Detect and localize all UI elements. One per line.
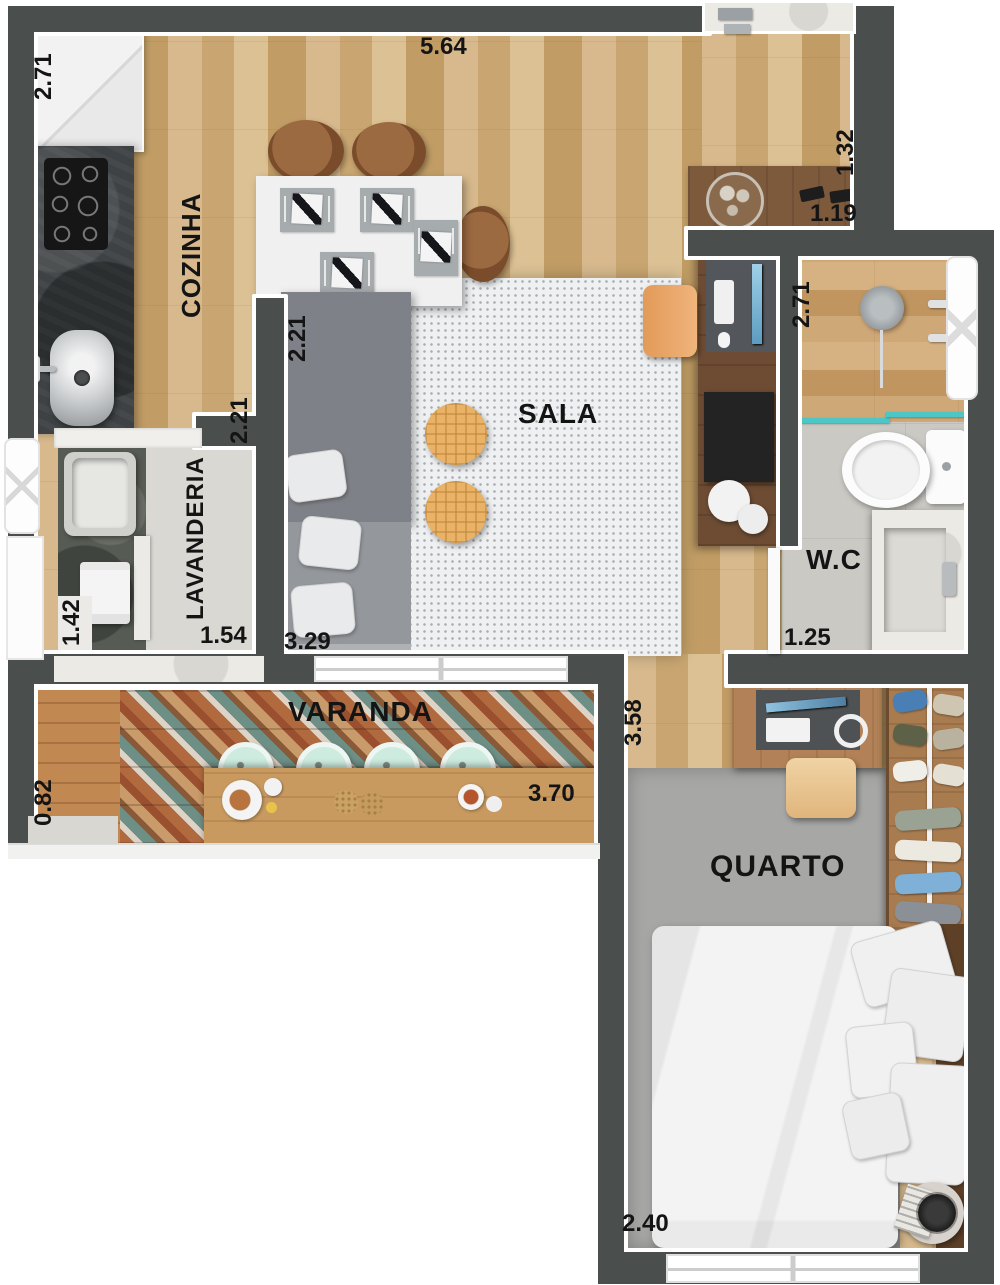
saucer [486, 796, 502, 812]
dim-kitchen-width: 2.21 [226, 378, 254, 444]
desk-keyboard [714, 280, 734, 324]
desk-mouse [718, 332, 730, 348]
niche-item [724, 24, 750, 34]
cooktop [44, 158, 108, 250]
dim-hall-width: 1.19 [810, 200, 857, 228]
dining-chair [352, 122, 426, 182]
placemat [320, 252, 374, 296]
vanity-basin [884, 528, 946, 632]
placemat [414, 220, 458, 276]
desk-chair [643, 285, 697, 357]
toilet-button [942, 462, 951, 471]
wall [728, 654, 994, 684]
wall [8, 6, 34, 858]
room-label-wc: W.C [806, 544, 862, 576]
sofa-pillow [284, 448, 348, 504]
laundry-sink-bowl [72, 458, 128, 528]
wall [256, 298, 284, 658]
dining-chair [456, 206, 510, 282]
cookie [334, 790, 358, 814]
small-cup [264, 778, 282, 796]
dim-bedroom-depth: 3.58 [620, 680, 648, 746]
lemon [266, 802, 277, 813]
desk-monitor [752, 264, 762, 344]
laundry-sill [54, 656, 264, 682]
food-plate [222, 780, 262, 820]
room-label-sala: SALA [518, 398, 598, 430]
bedroom-window [666, 1254, 920, 1283]
balcony-sliding-door [314, 656, 568, 682]
pouf [425, 481, 487, 543]
coffee-cup [458, 784, 484, 810]
shower-glass [886, 412, 968, 417]
placemat [360, 188, 414, 232]
balcony-edge-sill [8, 843, 600, 859]
washer-door [134, 536, 150, 640]
dim-hall-depth: 1.32 [832, 110, 860, 176]
wall [968, 654, 994, 1284]
placemat [280, 188, 334, 232]
bed-pillow [840, 1090, 911, 1161]
dim-wc-depth: 2.71 [788, 262, 816, 328]
shower-arm [880, 330, 883, 388]
pouf [425, 403, 487, 465]
clothing-item [895, 871, 962, 894]
dim-top-width: 5.64 [420, 33, 467, 61]
kitchen-laundry-threshold [54, 428, 202, 448]
dim-balcony-depth: 0.82 [30, 760, 58, 826]
dim-kitchen-depth: 2.71 [30, 34, 58, 100]
dim-laundry-depth: 1.42 [58, 580, 86, 646]
room-label-varanda: VARANDA [288, 696, 433, 728]
decor-disc [738, 504, 768, 534]
shower-glass [790, 418, 890, 423]
clothing-item [894, 807, 961, 832]
clothing-item [932, 693, 967, 718]
clothing-item [892, 688, 929, 714]
wall [598, 654, 624, 1284]
room-label-quarto: QUARTO [710, 850, 845, 884]
room-label-lavanderia: LAVANDERIA [182, 460, 210, 620]
bedroom-chair [786, 758, 856, 818]
room-label-cozinha: COZINHA [176, 190, 207, 318]
dim-wc-width: 1.25 [784, 624, 831, 652]
dim-sala-width: 3.29 [284, 628, 331, 656]
wall [854, 6, 894, 254]
cookie [360, 792, 384, 816]
wall [688, 230, 994, 256]
vanity-faucet [942, 562, 956, 596]
clothing-item [892, 759, 928, 782]
sofa-pillow [298, 515, 363, 571]
service-shaft [6, 536, 44, 660]
dim-bedroom-width: 2.40 [622, 1210, 669, 1238]
niche-item [718, 8, 752, 20]
table-fan [918, 1194, 956, 1232]
shower-head [860, 286, 904, 330]
clothing-item [895, 839, 962, 862]
dim-island-side: 2.21 [284, 296, 312, 362]
clothing-item [932, 727, 966, 751]
clothing-item [932, 762, 967, 787]
toilet-seat [852, 440, 920, 500]
dim-laundry-width: 1.54 [200, 622, 247, 650]
tv [704, 392, 774, 482]
dim-balcony-width: 3.70 [528, 780, 575, 808]
clothing-item [892, 723, 928, 748]
floor-plan: 2.71 5.64 1.32 1.19 COZINHA 2.21 2.21 SA… [0, 0, 1000, 1285]
window-louver [4, 438, 40, 534]
sink-drain [74, 370, 90, 386]
dining-chair [268, 120, 344, 182]
wc-window [946, 256, 978, 400]
wc-door-leaf [768, 548, 780, 654]
decor-tray [706, 172, 764, 230]
wall [8, 6, 708, 32]
headphones [834, 714, 868, 748]
bedroom-keyboard [766, 718, 810, 742]
